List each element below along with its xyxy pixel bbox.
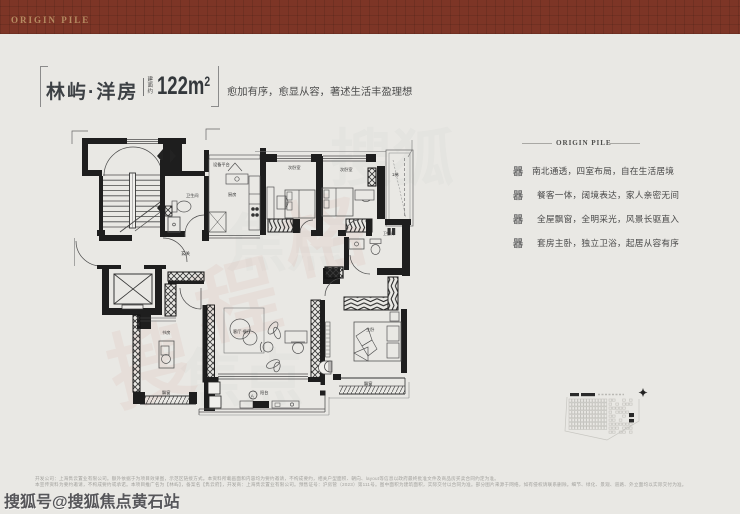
svg-text:主卧: 主卧 — [366, 326, 374, 333]
svg-text:阳台: 阳台 — [260, 389, 268, 396]
svg-text:卫生间: 卫生间 — [383, 231, 395, 236]
svg-text:客厅·餐厅: 客厅·餐厅 — [233, 328, 251, 335]
svg-text:厨房: 厨房 — [228, 191, 236, 198]
svg-text:飘窗: 飘窗 — [364, 380, 372, 387]
svg-text:设备平台: 设备平台 — [213, 161, 230, 168]
svg-text:搜狐: 搜狐 — [330, 125, 454, 194]
svg-text:书房: 书房 — [162, 329, 170, 336]
svg-text:次卧室: 次卧室 — [288, 164, 301, 171]
svg-text:次卧室: 次卧室 — [340, 166, 353, 173]
svg-text:飘窗: 飘窗 — [162, 389, 170, 396]
svg-text:1梯: 1梯 — [392, 171, 399, 178]
svg-text:A: A — [251, 393, 254, 398]
svg-text:焦点: 焦点 — [180, 345, 304, 414]
svg-text:卫生间: 卫生间 — [186, 192, 199, 199]
